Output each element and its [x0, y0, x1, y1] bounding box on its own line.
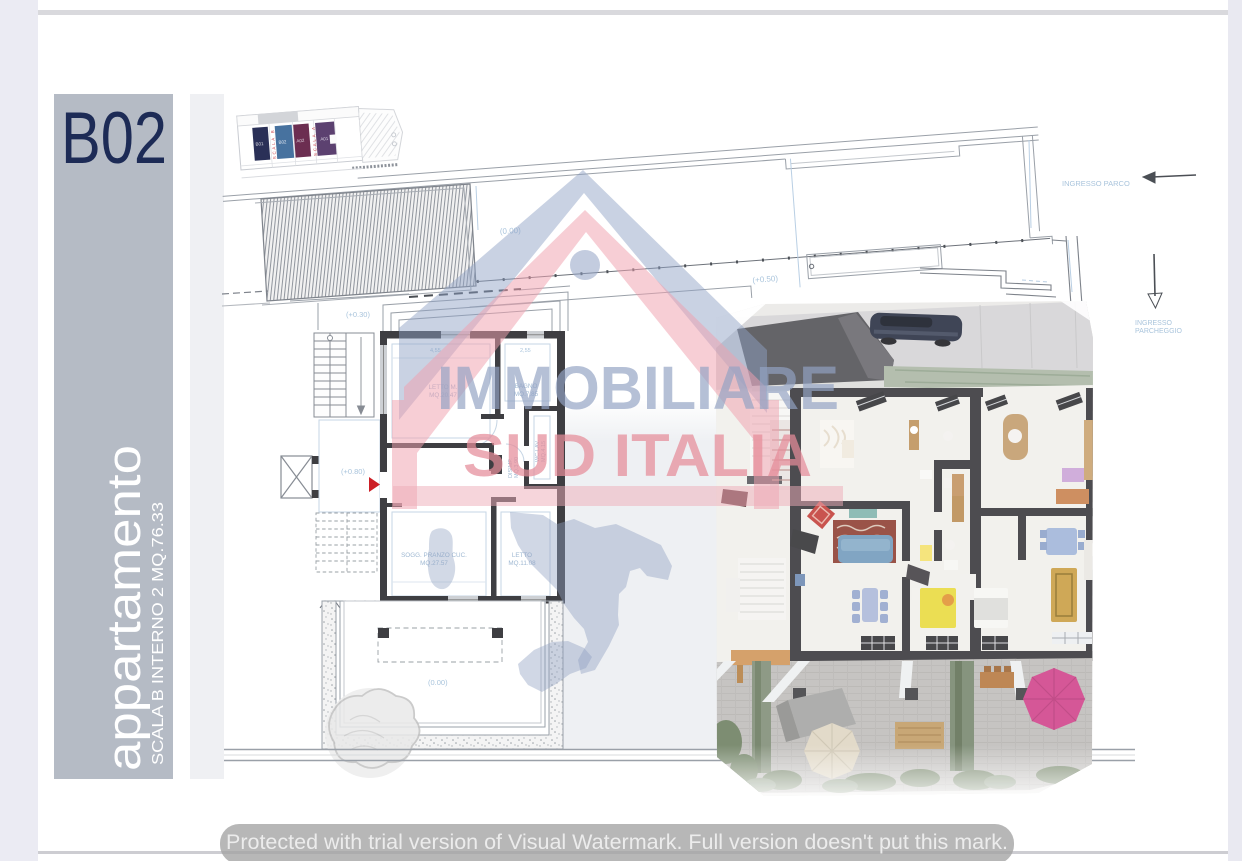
svg-text:appartamento: appartamento [97, 445, 150, 771]
svg-text:A01: A01 [320, 136, 329, 142]
svg-text:A02: A02 [296, 138, 305, 144]
svg-text:SCALA B INTERNO 2 MQ.76.33: SCALA B INTERNO 2 MQ.76.33 [150, 502, 167, 765]
svg-text:INGRESSO: INGRESSO [1135, 320, 1173, 327]
svg-text:IMMOBILIARE: IMMOBILIARE [437, 354, 839, 422]
svg-text:PARCHEGGIO: PARCHEGGIO [1135, 328, 1182, 335]
svg-text:Protected with trial version o: Protected with trial version of Visual W… [226, 830, 1008, 854]
svg-text:B02: B02 [278, 139, 287, 145]
svg-text:(0.00): (0.00) [428, 678, 448, 687]
svg-text:INGRESSO PARCO: INGRESSO PARCO [1062, 179, 1130, 188]
svg-text:(+0.80): (+0.80) [341, 467, 365, 476]
svg-text:B01: B01 [255, 141, 264, 147]
svg-text:(+0.30): (+0.30) [346, 310, 370, 319]
svg-text:SUD ITALIA: SUD ITALIA [463, 422, 812, 489]
svg-text:B02: B02 [61, 98, 167, 179]
